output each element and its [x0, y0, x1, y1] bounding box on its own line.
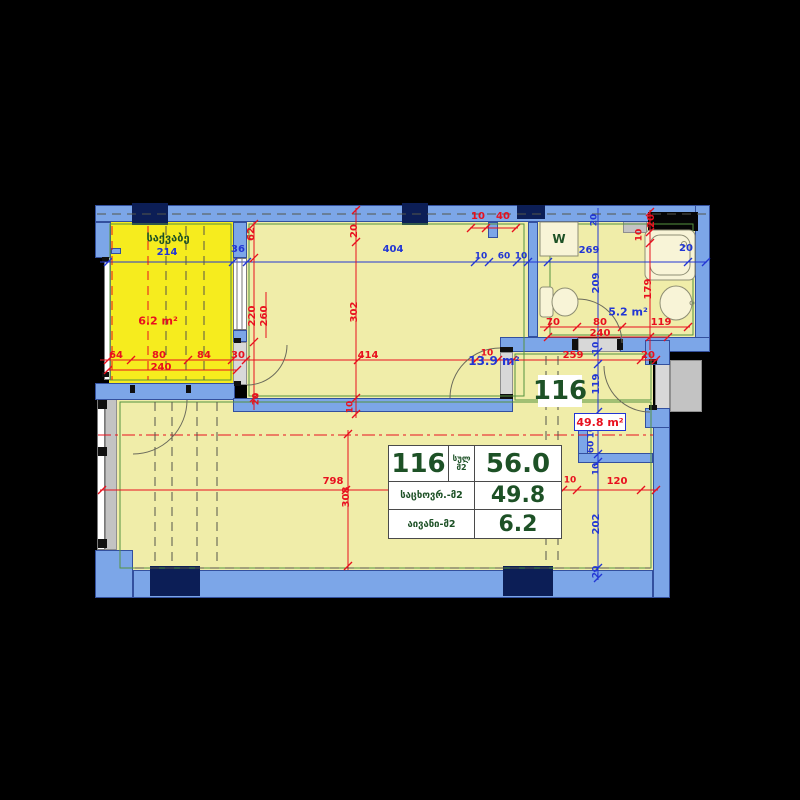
dimension-label: 20	[591, 214, 600, 227]
dimension-label: 240	[590, 329, 611, 339]
dimension-label: 10	[636, 229, 645, 242]
dimension-label: 60	[498, 253, 511, 262]
dimension-label: 220	[248, 306, 258, 327]
dimension-label: 20	[350, 224, 360, 238]
dimension-label: 179	[644, 279, 654, 300]
dimension-label: 10	[564, 477, 577, 486]
dimension-label: 64	[109, 351, 123, 361]
dimension-label: 10	[515, 253, 528, 262]
dimension-label: 260	[260, 306, 270, 327]
room-label-boiler: საქვაბე	[146, 233, 189, 244]
dimension-label: 62	[247, 227, 257, 241]
total-label-line1: სულ	[453, 454, 471, 463]
total-label-line2: მ2	[456, 463, 466, 472]
dimension-label: 70	[546, 318, 560, 328]
table-balcony-area: 6.2	[475, 510, 561, 538]
floor-plan-canvas: საქვაბე2146.2 m²W13.9 m²5.2 m²3640410601…	[0, 0, 800, 800]
table-living-area: 49.8	[475, 482, 561, 510]
dimension-label: 20	[679, 244, 693, 254]
table-living-label: საცხოვრ.-მ2	[389, 482, 475, 510]
washing-machine-label: W	[552, 233, 565, 245]
dimension-label: 209	[592, 273, 602, 294]
dimension-label: 20	[593, 566, 602, 579]
dimension-label: 40	[496, 212, 510, 222]
dimension-labels-layer: საქვაბე2146.2 m²W13.9 m²5.2 m²3640410601…	[0, 0, 800, 800]
area-label-balcony: 6.2 m²	[138, 316, 178, 327]
dimension-label: 10	[471, 212, 485, 222]
area-summary-table: 116 სულ მ2 56.0 საცხოვრ.-მ2 49.8 აივანი-…	[388, 445, 562, 539]
dimension-label: 269	[579, 246, 600, 256]
dimension-label: 10	[481, 350, 494, 359]
dimension-label: 60	[588, 441, 597, 454]
dimension-label: 80	[152, 351, 166, 361]
dimension-label: 302	[350, 302, 360, 323]
dimension-label: 259	[563, 351, 584, 361]
dimension-label: 84	[197, 351, 211, 361]
table-balcony-label: აივანი-მ2	[389, 510, 475, 538]
dimension-label: 10	[593, 463, 602, 476]
dimension-label: 20	[641, 351, 655, 361]
dimension-label: 214	[157, 248, 178, 258]
area-label-bathroom: 5.2 m²	[608, 307, 648, 318]
dimension-label: 10	[347, 401, 356, 414]
dimension-label: 414	[358, 351, 379, 361]
dimension-label: 308	[342, 487, 352, 508]
dimension-label: 36	[231, 245, 245, 255]
dimension-label: 240	[151, 363, 172, 373]
dimension-label: 120	[607, 477, 628, 487]
dimension-label: 119	[592, 374, 602, 395]
dimension-label: 404	[383, 245, 404, 255]
table-total-area: 56.0	[475, 446, 561, 482]
dimension-label: 30	[231, 351, 245, 361]
dimension-label: 119	[651, 318, 672, 328]
dimension-label: 80	[593, 318, 607, 328]
area-label-room: 13.9 m²	[468, 355, 520, 367]
dimension-label: 20	[647, 214, 657, 228]
dimension-label: 202	[592, 514, 602, 535]
dimension-label: 20	[253, 393, 262, 406]
table-unit-number: 116	[389, 446, 449, 482]
living-area-box: 49.8 m²	[574, 413, 626, 431]
table-total-label: სულ მ2	[449, 446, 475, 482]
dimension-label: 10	[593, 342, 602, 355]
unit-number-box: 116	[538, 375, 582, 407]
dimension-label: 10	[475, 253, 488, 262]
